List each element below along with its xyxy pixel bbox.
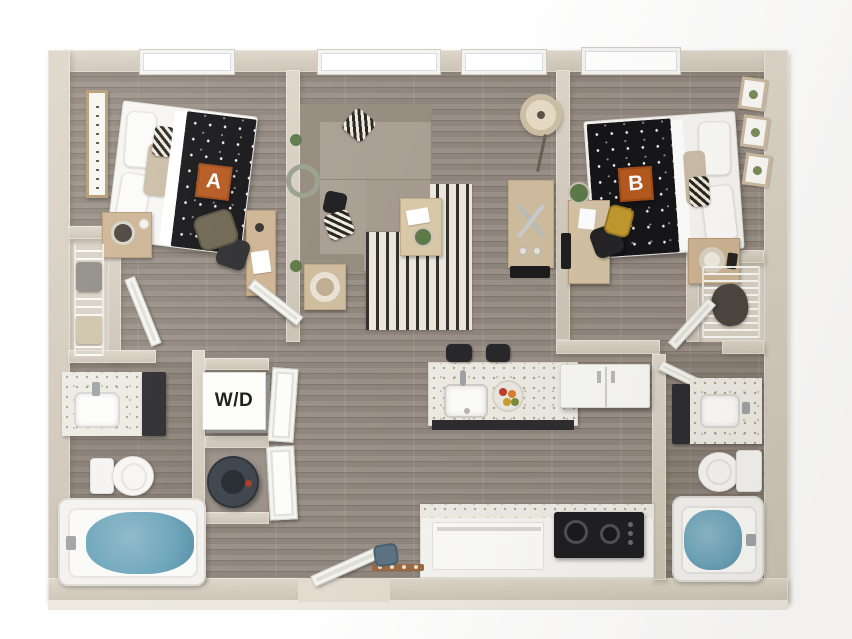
botanical-print (752, 165, 762, 175)
vanity-a-cabinet (142, 372, 166, 436)
fruit-bowl (492, 380, 524, 412)
paper-sheet (578, 208, 596, 230)
water-heater-valve (245, 480, 252, 487)
toilet-b-bowl (698, 452, 740, 492)
tub-b (672, 496, 764, 582)
washer-dryer-unit: W/D (202, 372, 266, 430)
water-heater-top (221, 470, 245, 494)
floor-lamp-finial (537, 111, 545, 119)
fridge-door-split (605, 367, 607, 407)
folded-linen-gray (76, 262, 102, 292)
tv-panel (510, 266, 550, 278)
wall-kitchen-bathB (652, 354, 666, 580)
outer-wall-base (48, 600, 788, 610)
laundry-closet-door (267, 367, 298, 443)
water-heater (207, 456, 259, 508)
bedroom-a-label: A (195, 163, 233, 201)
island-faucet (460, 370, 466, 386)
vanity-b-cabinet (672, 384, 690, 444)
plant-b (570, 184, 588, 202)
toilet-a-seat (121, 463, 147, 491)
botanical-frame (740, 114, 770, 149)
botanical-print (748, 89, 758, 99)
wall-bedroomB-bottom-left (556, 340, 660, 354)
wall-bedroomA-living (286, 70, 300, 342)
ring-lamp (310, 272, 340, 302)
paper-roll (139, 219, 149, 229)
washer-dryer-label: W/D (215, 390, 253, 412)
living-window-right (462, 50, 546, 74)
wall-plant (290, 134, 302, 146)
refrigerator (560, 364, 650, 408)
vanity-b-faucet (742, 402, 750, 414)
nightstand-a (102, 212, 152, 258)
wall-art-script (96, 101, 99, 189)
heater-closet-door (266, 445, 298, 520)
cup (533, 247, 541, 255)
entry-bag (373, 542, 400, 567)
burner (564, 520, 588, 544)
bedroom-b-label: B (618, 166, 654, 202)
vanity-a-sink (74, 392, 120, 428)
island-base (432, 420, 574, 430)
side-table (304, 264, 346, 310)
wall-laundry-heater (205, 436, 269, 448)
burner (600, 524, 620, 544)
toilet-a-tank (90, 458, 114, 494)
floor-lamp (520, 94, 562, 136)
wall-wreath (286, 164, 320, 198)
botanical-print (750, 127, 760, 137)
tub-a (58, 498, 206, 586)
monitor (561, 233, 571, 269)
vanity-b-sink (700, 394, 740, 428)
tub-a-water (86, 512, 194, 574)
cup (519, 247, 527, 255)
dishwasher-panel (432, 522, 544, 570)
sofa-seat-top (320, 122, 432, 180)
toilet-b-seat (706, 459, 732, 485)
stove-knob (628, 522, 633, 527)
tub-b-faucet (746, 534, 756, 546)
dishwasher-handle (437, 527, 541, 531)
tv-console (508, 180, 554, 268)
bedroom-b-window (582, 48, 680, 74)
tub-b-water (684, 510, 742, 570)
toilet-a-bowl (112, 456, 154, 496)
wall-plant (290, 260, 302, 272)
lamp-a (111, 221, 135, 245)
cooktop (554, 512, 644, 558)
folded-linen-beige (76, 316, 102, 344)
wall-bedroomB-bottom-right (722, 340, 764, 354)
vanity-a-faucet (92, 382, 100, 396)
sink-drain (464, 408, 470, 414)
wall-laundry-top (205, 358, 269, 370)
apartment-plan: A (0, 0, 852, 639)
desk-lamp-a (255, 223, 264, 232)
fridge-handle (597, 371, 601, 383)
toilet-b-tank (736, 450, 762, 492)
magazine (406, 207, 430, 226)
coffee-table (400, 198, 442, 256)
paper-sheet (251, 250, 272, 274)
patterned-pillow (689, 176, 711, 207)
island-sink (444, 384, 488, 418)
floorplan-canvas: A (0, 0, 852, 639)
tub-a-faucet (66, 536, 76, 550)
bar-stool (446, 344, 472, 362)
fridge-handle (611, 371, 615, 383)
bar-stool (486, 344, 510, 362)
table-plant (415, 229, 431, 245)
living-window-left (318, 50, 440, 74)
botanical-frame (742, 152, 772, 187)
wall-art-vertical-sign (86, 90, 108, 198)
botanical-frame (738, 76, 768, 111)
wall-heater-bottom (205, 512, 269, 524)
fruit (499, 388, 507, 396)
bedroom-a-window (140, 50, 234, 74)
